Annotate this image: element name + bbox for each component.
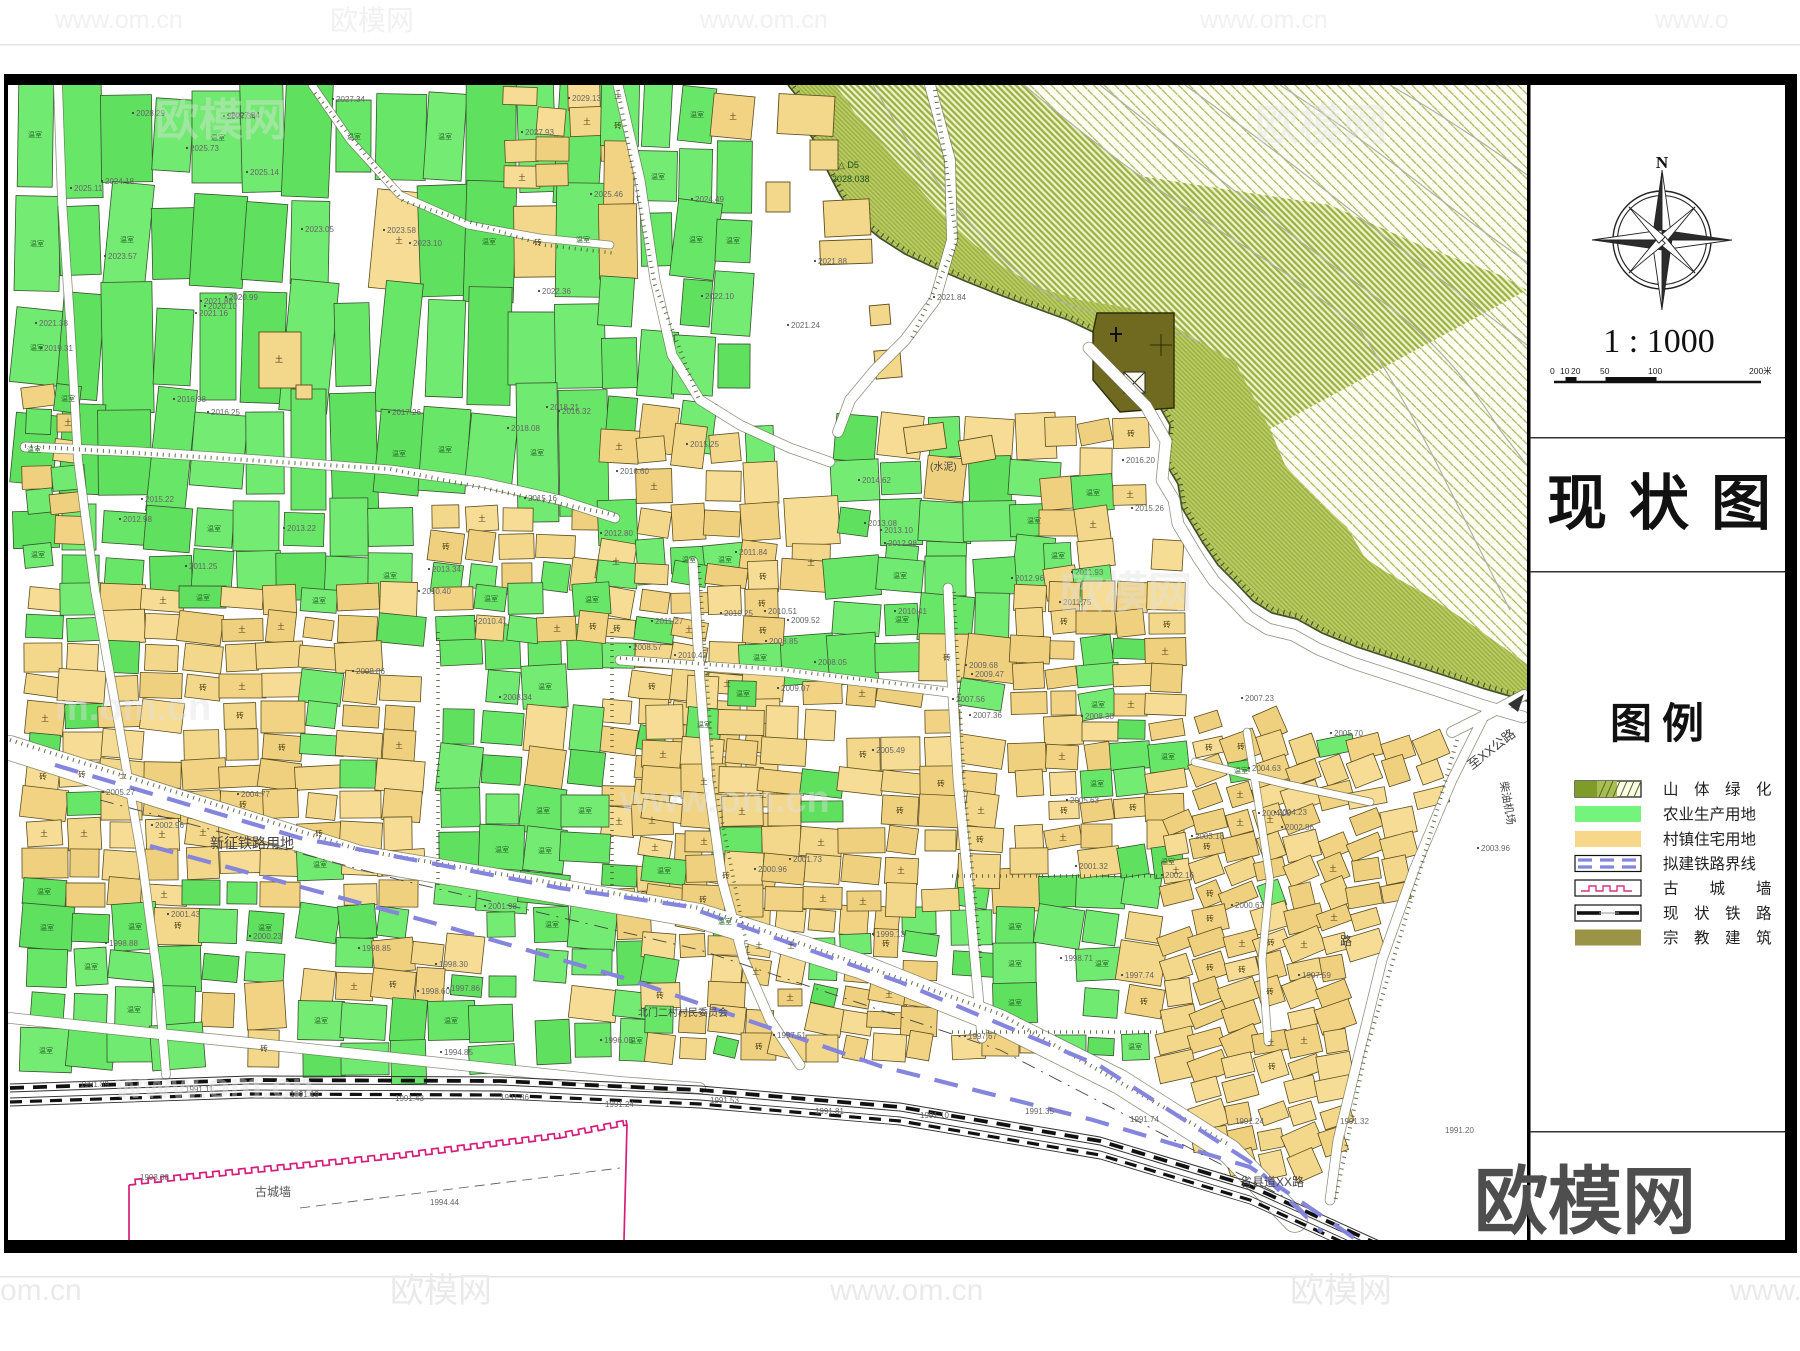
svg-text:2009.07: 2009.07 — [781, 684, 810, 693]
svg-text:温室: 温室 — [196, 593, 210, 602]
svg-text:1999.13: 1999.13 — [876, 930, 905, 939]
svg-text:2010.42: 2010.42 — [678, 651, 707, 660]
svg-text:50: 50 — [1600, 366, 1610, 376]
svg-text:欧模网: 欧模网 — [1474, 1160, 1696, 1243]
svg-text:2004.77: 2004.77 — [241, 790, 270, 799]
svg-text:砖: 砖 — [589, 621, 597, 631]
svg-text:砖: 砖 — [39, 771, 47, 781]
svg-text:温室: 温室 — [1090, 779, 1104, 788]
svg-text:1994.85: 1994.85 — [444, 1048, 473, 1057]
svg-text:2025.14: 2025.14 — [250, 168, 279, 177]
svg-text:砖: 砖 — [1237, 741, 1245, 751]
svg-text:2005.70: 2005.70 — [1334, 729, 1363, 738]
svg-text:2023.58: 2023.58 — [387, 226, 416, 235]
svg-text:温室: 温室 — [530, 448, 544, 457]
svg-text:土: 土 — [1300, 1035, 1308, 1045]
svg-text:温室: 温室 — [1161, 857, 1175, 866]
svg-text:www.: www. — [1729, 1274, 1800, 1307]
svg-text:温室: 温室 — [484, 594, 498, 603]
svg-text:2016.60: 2016.60 — [620, 467, 649, 476]
svg-text:om.cn: om.cn — [0, 1274, 82, 1307]
svg-text:2018.21: 2018.21 — [550, 403, 579, 412]
svg-text:温室: 温室 — [444, 1016, 458, 1025]
svg-text:2008.86: 2008.86 — [356, 667, 385, 676]
svg-text:温室: 温室 — [1234, 766, 1248, 775]
svg-text:砖: 砖 — [1206, 913, 1214, 923]
svg-text:砖: 砖 — [882, 938, 890, 948]
svg-text:土: 土 — [685, 624, 693, 634]
svg-text:砖: 砖 — [656, 990, 664, 1000]
svg-text:温室: 温室 — [120, 235, 134, 244]
svg-text:2013.10: 2013.10 — [884, 526, 913, 535]
svg-text:2021.88: 2021.88 — [818, 257, 847, 266]
svg-text:土: 土 — [41, 713, 49, 723]
svg-text:温室: 温室 — [383, 571, 397, 580]
svg-text:2013.22: 2013.22 — [287, 524, 316, 533]
svg-text:2000.67: 2000.67 — [1235, 901, 1264, 910]
svg-text:1991.53: 1991.53 — [710, 1096, 739, 1105]
svg-text:2016.98: 2016.98 — [177, 395, 206, 404]
svg-text:2011.84: 2011.84 — [739, 548, 768, 557]
svg-text:1991.24: 1991.24 — [1235, 1117, 1264, 1126]
svg-text:1998.71: 1998.71 — [1064, 954, 1093, 963]
svg-text:砖: 砖 — [442, 541, 450, 551]
svg-text:砖: 砖 — [174, 920, 182, 930]
svg-text:2017.26: 2017.26 — [392, 408, 421, 417]
svg-text:2002.86: 2002.86 — [1285, 823, 1314, 832]
svg-text:土: 土 — [1236, 817, 1244, 827]
svg-text:1994.44: 1994.44 — [430, 1198, 459, 1207]
svg-text:2012.98: 2012.98 — [888, 539, 917, 548]
svg-text:2012.96: 2012.96 — [1015, 574, 1044, 583]
svg-text:砖: 砖 — [1140, 996, 1148, 1006]
svg-text:欧模网: 欧模网 — [1290, 1272, 1392, 1310]
svg-text:砖: 砖 — [859, 749, 867, 759]
svg-text:温室: 温室 — [689, 235, 703, 244]
svg-text:2005.63: 2005.63 — [1070, 796, 1099, 805]
svg-text:温室: 温室 — [482, 237, 496, 246]
svg-text:土: 土 — [199, 827, 207, 837]
svg-text:1993.88: 1993.88 — [140, 1173, 169, 1182]
svg-text:土: 土 — [1329, 863, 1337, 873]
svg-text:温室: 温室 — [28, 130, 42, 139]
svg-text:北门二村村民委员会: 北门二村村民委员会 — [638, 1006, 728, 1019]
svg-text:温室: 温室 — [576, 235, 590, 244]
svg-text:2000.23: 2000.23 — [253, 932, 282, 941]
svg-text:温室: 温室 — [127, 1005, 141, 1014]
svg-text:土: 土 — [651, 842, 659, 852]
svg-text:土: 土 — [275, 354, 283, 364]
svg-text:2024.49: 2024.49 — [695, 195, 724, 204]
svg-text:2009.47: 2009.47 — [975, 670, 1004, 679]
svg-text:2021.84: 2021.84 — [937, 293, 966, 302]
svg-text:温室: 温室 — [1095, 959, 1109, 968]
svg-text:土: 土 — [807, 557, 815, 567]
svg-text:砖: 砖 — [78, 769, 86, 779]
svg-text:路: 路 — [1340, 933, 1352, 948]
svg-text:土: 土 — [518, 172, 526, 182]
svg-text:2010.41: 2010.41 — [478, 617, 507, 626]
svg-text:温室: 温室 — [27, 445, 41, 454]
svg-text:砖: 砖 — [1205, 742, 1213, 752]
svg-text:1998.30: 1998.30 — [439, 960, 468, 969]
svg-text:土: 土 — [1267, 1037, 1275, 1047]
svg-text:温室: 温室 — [753, 653, 767, 662]
svg-text:2021.38: 2021.38 — [39, 319, 68, 328]
svg-text:2023.10: 2023.10 — [413, 239, 442, 248]
svg-text:2025.11: 2025.11 — [74, 184, 103, 193]
svg-text:2001.73: 2001.73 — [793, 855, 822, 864]
svg-text:村镇住宅用地: 村镇住宅用地 — [1663, 831, 1756, 849]
svg-text:1991.32: 1991.32 — [1340, 1117, 1369, 1126]
svg-text:土: 土 — [238, 624, 246, 634]
svg-text:温室: 温室 — [1091, 700, 1105, 709]
svg-text:土: 土 — [238, 681, 246, 691]
svg-text:土: 土 — [395, 740, 403, 750]
svg-text:温室: 温室 — [1008, 922, 1022, 931]
svg-text:土: 土 — [1089, 519, 1097, 529]
svg-text:2018.08: 2018.08 — [511, 424, 540, 433]
svg-text:土: 土 — [1236, 789, 1244, 799]
svg-text:砖: 砖 — [1127, 428, 1135, 438]
svg-text:土: 土 — [40, 828, 48, 838]
svg-text:1997.59: 1997.59 — [1302, 971, 1331, 980]
svg-text:土: 土 — [885, 989, 893, 999]
svg-text:土: 土 — [858, 688, 866, 698]
svg-text:土: 土 — [80, 828, 88, 838]
svg-text:砖: 砖 — [896, 805, 904, 815]
svg-text:温室: 温室 — [1008, 959, 1022, 968]
svg-text:温室: 温室 — [39, 1046, 53, 1055]
svg-text:温室: 温室 — [1128, 1042, 1142, 1051]
svg-text:2008.85: 2008.85 — [769, 637, 798, 646]
svg-text:2016.20: 2016.20 — [1126, 456, 1155, 465]
svg-text:2028.038: 2028.038 — [832, 174, 870, 184]
svg-text:土: 土 — [786, 992, 794, 1002]
svg-text:欧模网: 欧模网 — [155, 96, 287, 145]
svg-text:欧模网: 欧模网 — [390, 1272, 492, 1310]
svg-text:2012.80: 2012.80 — [604, 529, 633, 538]
svg-text:砖: 砖 — [943, 652, 951, 662]
svg-text:2007.23: 2007.23 — [1245, 694, 1274, 703]
svg-text:砖: 砖 — [1129, 802, 1137, 812]
svg-text:2010.41: 2010.41 — [898, 607, 927, 616]
svg-text:2015.22: 2015.22 — [145, 495, 174, 504]
svg-text:温室: 温室 — [893, 571, 907, 580]
svg-text:2010.40: 2010.40 — [422, 587, 451, 596]
svg-text:温室: 温室 — [657, 866, 671, 875]
svg-text:土: 土 — [159, 595, 167, 605]
svg-text:温室: 温室 — [538, 846, 552, 855]
svg-text:温室: 温室 — [578, 806, 592, 815]
svg-text:200米: 200米 — [1749, 366, 1772, 376]
svg-text:欧模网: 欧模网 — [330, 5, 414, 36]
svg-text:2015.26: 2015.26 — [1135, 504, 1164, 513]
svg-text:砖: 砖 — [755, 1041, 763, 1051]
svg-text:100: 100 — [1648, 366, 1662, 376]
svg-text:农业生产用地: 农业生产用地 — [1663, 806, 1756, 824]
svg-text:砖: 砖 — [976, 834, 984, 844]
svg-text:1991.24: 1991.24 — [605, 1100, 634, 1109]
svg-text:温室: 温室 — [312, 596, 326, 605]
svg-text:土: 土 — [1161, 646, 1169, 656]
svg-text:2023.05: 2023.05 — [305, 225, 334, 234]
svg-text:m.om.cn: m.om.cn — [55, 687, 211, 729]
svg-text:古城墙: 古城墙 — [255, 1184, 291, 1199]
svg-text:温室: 温室 — [1027, 516, 1041, 525]
svg-text:温室: 温室 — [128, 922, 142, 931]
svg-text:图例: 图例 — [1610, 701, 1714, 748]
svg-text:2022.10: 2022.10 — [705, 292, 734, 301]
svg-text:2015.25: 2015.25 — [690, 440, 719, 449]
svg-text:温室: 温室 — [258, 923, 272, 932]
svg-text:温室: 温室 — [31, 550, 45, 559]
svg-text:温室: 温室 — [40, 923, 54, 932]
svg-text:2029.13: 2029.13 — [572, 94, 601, 103]
svg-text:砖: 砖 — [1238, 964, 1246, 974]
svg-text:1998.88: 1998.88 — [109, 939, 138, 948]
svg-text:土: 土 — [160, 889, 168, 899]
svg-text:1998.60: 1998.60 — [421, 987, 450, 996]
svg-text:20: 20 — [1571, 366, 1581, 376]
svg-text:2009.52: 2009.52 — [791, 616, 820, 625]
svg-text:土: 土 — [755, 940, 763, 950]
svg-text:砖: 砖 — [613, 623, 621, 633]
svg-text:温室: 温室 — [495, 845, 509, 854]
svg-text:1991.74: 1991.74 — [1130, 1115, 1159, 1124]
svg-text:温室: 温室 — [84, 962, 98, 971]
svg-text:省县道XX路: 省县道XX路 — [1240, 1174, 1304, 1189]
svg-text:2022.36: 2022.36 — [542, 287, 571, 296]
svg-text:土: 土 — [1127, 699, 1135, 709]
svg-text:2005.49: 2005.49 — [876, 746, 905, 755]
svg-text:温室: 温室 — [895, 615, 909, 624]
svg-text:砖: 砖 — [239, 799, 247, 809]
svg-text:2003.18: 2003.18 — [1195, 832, 1224, 841]
svg-text:温室: 温室 — [726, 236, 740, 245]
svg-text:砖: 砖 — [1267, 937, 1275, 947]
svg-text:2004.63: 2004.63 — [1252, 764, 1281, 773]
svg-text:温室: 温室 — [30, 343, 44, 352]
svg-text:2009.68: 2009.68 — [969, 661, 998, 670]
svg-text:2012.98: 2012.98 — [123, 515, 152, 524]
svg-text:山 体 绿 化: 山 体 绿 化 — [1663, 781, 1772, 799]
svg-text:1991.20: 1991.20 — [1445, 1126, 1474, 1135]
svg-text:砖: 砖 — [389, 979, 397, 989]
svg-text:温室: 温室 — [651, 172, 665, 181]
svg-text:2001.32: 2001.32 — [1079, 862, 1108, 871]
svg-text:砖: 砖 — [758, 598, 766, 608]
svg-text:2023.57: 2023.57 — [108, 252, 137, 261]
svg-text:欧模网: 欧模网 — [1255, 101, 1387, 150]
svg-text:2010.51: 2010.51 — [768, 607, 797, 616]
svg-text:砖: 砖 — [534, 237, 542, 247]
svg-text:温室: 温室 — [545, 920, 559, 929]
svg-text:www.om.cn: www.om.cn — [829, 1274, 983, 1307]
svg-text:砖: 砖 — [1206, 888, 1214, 898]
svg-text:2013.34: 2013.34 — [432, 565, 461, 574]
svg-text:温室: 温室 — [682, 555, 696, 564]
svg-text:土: 土 — [819, 893, 827, 903]
svg-text:土: 土 — [977, 805, 985, 815]
svg-text:2027.93: 2027.93 — [525, 128, 554, 137]
svg-text:土: 土 — [64, 417, 72, 427]
svg-text:温室: 温室 — [736, 689, 750, 698]
svg-text:10: 10 — [1560, 366, 1570, 376]
svg-text:土: 土 — [1300, 939, 1308, 949]
svg-text:2027.34: 2027.34 — [336, 95, 365, 104]
svg-text:2002.96: 2002.96 — [155, 821, 184, 830]
svg-text:2010.25: 2010.25 — [724, 609, 753, 618]
svg-text:砖: 砖 — [1206, 962, 1214, 972]
svg-text:欧模网: 欧模网 — [1060, 569, 1192, 618]
svg-text:温室: 温室 — [37, 887, 51, 896]
svg-text:土: 土 — [1172, 865, 1180, 875]
svg-text:砖: 砖 — [1163, 619, 1171, 629]
svg-text:温室: 温室 — [61, 394, 75, 403]
svg-text:2008.38: 2008.38 — [1085, 712, 1114, 721]
svg-text:2025.46: 2025.46 — [594, 190, 623, 199]
svg-text:砖: 砖 — [759, 625, 767, 635]
svg-text:2003.96: 2003.96 — [1481, 844, 1510, 853]
svg-text:土: 土 — [277, 621, 285, 631]
svg-text:土: 土 — [897, 865, 905, 875]
svg-text:1997.74: 1997.74 — [1125, 971, 1154, 980]
svg-text:砖: 砖 — [278, 742, 286, 752]
svg-text:2021.24: 2021.24 — [791, 321, 820, 330]
svg-text:2007.36: 2007.36 — [973, 711, 1002, 720]
svg-text:温室: 温室 — [718, 555, 732, 564]
svg-text:温室: 温室 — [30, 239, 44, 248]
svg-text:土: 土 — [615, 441, 623, 451]
svg-text:温室: 温室 — [347, 132, 361, 141]
svg-text:温室: 温室 — [690, 110, 704, 119]
svg-text:土: 土 — [478, 513, 486, 523]
svg-text:土: 土 — [723, 678, 731, 688]
svg-text:土: 土 — [787, 940, 795, 950]
svg-text:现 状 铁 路: 现 状 铁 路 — [1663, 905, 1772, 923]
svg-text:砖: 砖 — [1060, 805, 1068, 815]
svg-text:土: 土 — [1238, 938, 1246, 948]
svg-text:2008.05: 2008.05 — [818, 658, 847, 667]
svg-text:1997.86: 1997.86 — [451, 984, 480, 993]
svg-text:温室: 温室 — [313, 860, 327, 869]
svg-text:现状图: 现状图 — [1547, 471, 1793, 537]
svg-text:土: 土 — [700, 836, 708, 846]
svg-text:砖: 砖 — [699, 894, 707, 904]
svg-text:1991.81: 1991.81 — [815, 1107, 844, 1116]
svg-text:1997.67: 1997.67 — [968, 1032, 997, 1041]
svg-text:2008.34: 2008.34 — [503, 693, 532, 702]
svg-text:砖: 砖 — [1266, 986, 1274, 996]
svg-text:(水泥): (水泥) — [930, 460, 957, 473]
svg-text:土: 土 — [612, 556, 620, 566]
svg-text:温室: 温室 — [438, 445, 452, 454]
svg-text:土: 土 — [553, 623, 561, 633]
svg-text:新征铁路用地: 新征铁路用地 — [210, 835, 294, 851]
svg-text:www.om.cn: www.om.cn — [114, 1065, 314, 1106]
svg-text:1998.85: 1998.85 — [362, 944, 391, 953]
svg-text:2025.73: 2025.73 — [190, 144, 219, 153]
svg-text:2020.10: 2020.10 — [208, 302, 237, 311]
svg-text:温室: 温室 — [1086, 488, 1100, 497]
svg-text:△ D5: △ D5 — [838, 160, 859, 170]
svg-text:砖: 砖 — [614, 120, 622, 130]
svg-text:土: 土 — [859, 896, 867, 906]
svg-text:土: 土 — [583, 116, 591, 126]
svg-text:2011.27: 2011.27 — [655, 617, 684, 626]
svg-text:砖: 砖 — [648, 681, 656, 691]
svg-text:2011.25: 2011.25 — [189, 562, 218, 571]
svg-text:温室: 温室 — [438, 132, 452, 141]
svg-text:宗 教 建 筑: 宗 教 建 筑 — [1663, 929, 1772, 947]
svg-text:土: 土 — [614, 90, 622, 100]
svg-text:2007.56: 2007.56 — [956, 695, 985, 704]
svg-text:2016.25: 2016.25 — [211, 408, 240, 417]
svg-text:温室: 温室 — [629, 1036, 643, 1045]
svg-text:1 : 1000: 1 : 1000 — [1603, 323, 1714, 360]
svg-text:www.om.cn: www.om.cn — [699, 6, 828, 34]
svg-text:土: 土 — [1059, 832, 1067, 842]
svg-text:土: 土 — [350, 981, 358, 991]
svg-text:www.om.cn: www.om.cn — [54, 6, 183, 34]
svg-text:温室: 温室 — [1161, 752, 1175, 761]
svg-text:土: 土 — [119, 770, 127, 780]
svg-text:温室: 温室 — [538, 682, 552, 691]
svg-text:砖: 砖 — [1203, 841, 1211, 851]
svg-text:1991.43: 1991.43 — [395, 1094, 424, 1103]
svg-text:土: 土 — [395, 235, 403, 245]
svg-text:2014.62: 2014.62 — [862, 476, 891, 485]
svg-text:温室: 温室 — [1051, 551, 1065, 560]
svg-text:温室: 温室 — [207, 524, 221, 533]
svg-text:1997.51: 1997.51 — [777, 1031, 806, 1040]
svg-text:1991.10: 1991.10 — [920, 1111, 949, 1120]
svg-text:拟建铁路界线: 拟建铁路界线 — [1663, 855, 1756, 873]
svg-text:2019.31: 2019.31 — [44, 344, 73, 353]
svg-text:www.om.cn: www.om.cn — [619, 779, 830, 821]
svg-text:温室: 温室 — [1008, 998, 1022, 1007]
svg-text:1991.89: 1991.89 — [80, 1080, 109, 1089]
svg-text:2020.99: 2020.99 — [229, 293, 258, 302]
svg-text:www.om.cn: www.om.cn — [1199, 6, 1328, 34]
svg-text:2001.98: 2001.98 — [488, 902, 517, 911]
svg-text:土: 土 — [729, 111, 737, 121]
svg-text:土: 土 — [158, 829, 166, 839]
svg-text:砖: 砖 — [260, 1043, 268, 1053]
svg-text:温室: 温室 — [314, 1016, 328, 1025]
svg-text:N: N — [1656, 153, 1669, 172]
svg-text:砖: 砖 — [1268, 1061, 1276, 1071]
svg-text:0: 0 — [1550, 366, 1555, 376]
svg-text:温室: 温室 — [536, 806, 550, 815]
svg-text:土: 土 — [817, 837, 825, 847]
svg-text:土: 土 — [659, 749, 667, 759]
svg-text:温室: 温室 — [718, 917, 732, 926]
svg-text:砖: 砖 — [759, 571, 767, 581]
svg-text:土: 土 — [650, 481, 658, 491]
svg-text:2024.18: 2024.18 — [105, 177, 134, 186]
svg-text:1991.36: 1991.36 — [500, 1093, 529, 1102]
svg-text:1991.35: 1991.35 — [1025, 1107, 1054, 1116]
svg-text:土: 土 — [752, 966, 760, 976]
svg-text:www.o: www.o — [1654, 6, 1729, 34]
svg-text:2001.43: 2001.43 — [171, 910, 200, 919]
svg-text:砖: 砖 — [937, 778, 945, 788]
svg-text:温室: 温室 — [392, 449, 406, 458]
svg-text:温室: 温室 — [585, 595, 599, 604]
svg-text:2005.27: 2005.27 — [106, 788, 135, 797]
